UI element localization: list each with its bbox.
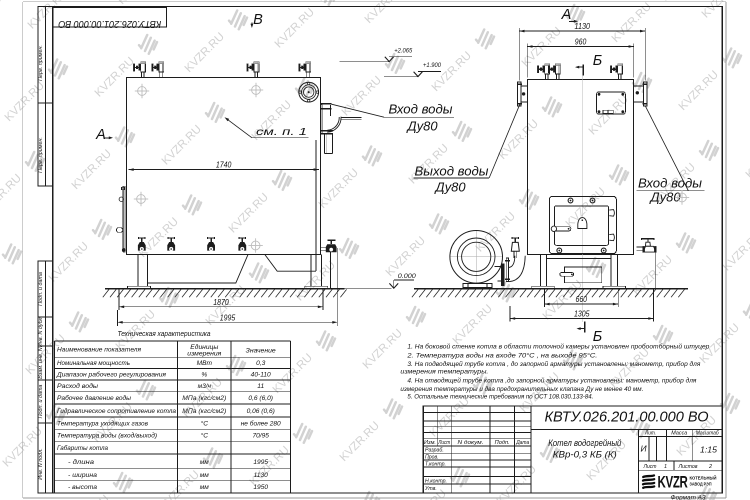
svg-text:0,06 (0,6): 0,06 (0,6) [247,408,275,415]
svg-text:N докум.: N докум. [458,440,484,446]
svg-text:0,6 (6,0): 0,6 (6,0) [248,395,273,402]
svg-text:0,3: 0,3 [256,360,265,367]
svg-text:КВТУ.026.201.00.000 ВО: КВТУ.026.201.00.000 ВО [545,409,709,426]
svg-text:1995: 1995 [253,459,268,466]
svg-text:70/95: 70/95 [252,433,269,440]
svg-text:Пров.: Пров. [425,454,439,460]
svg-text:измерения температуры и два пр: измерения температуры и два предохраните… [400,385,643,393]
svg-text:2: 2 [708,464,712,470]
svg-text:В: В [253,12,263,28]
svg-text:Разраб.: Разраб. [425,448,444,454]
svg-text:1740: 1740 [216,161,232,170]
svg-text:А: А [561,7,572,23]
svg-text:°С: °С [201,432,209,440]
svg-text:Рабочее давление воды: Рабочее давление воды [57,394,131,402]
svg-text:Масштаб: Масштаб [696,431,720,437]
svg-text:1950: 1950 [253,484,268,491]
svg-text:Гидравлическое сопротивление к: Гидравлическое сопротивление котла [57,407,176,415]
svg-text:МВт: МВт [197,360,213,367]
svg-text:см. п. 1: см. п. 1 [256,126,307,138]
svg-text:1. На боковой стенке котла в: 1. На боковой стенке котла в области топ… [407,342,709,350]
svg-text:мм: мм [200,472,210,479]
svg-text:%: % [201,372,207,379]
svg-text:Инв. N дубл.: Инв. N дубл. [38,316,44,347]
svg-text:1995: 1995 [220,313,236,322]
svg-text:Ду80: Ду80 [406,119,439,134]
svg-text:И: И [641,444,648,454]
svg-text:0.000: 0.000 [398,273,416,280]
svg-text:Подп. и дата: Подп. и дата [38,272,44,306]
svg-text:960: 960 [575,38,587,47]
svg-text:МПа (кгс/см2): МПа (кгс/см2) [182,408,226,415]
svg-text:Номинальная мощность: Номинальная мощность [57,360,130,367]
svg-text:Дата: Дата [515,440,529,446]
svg-text:Формат А3: Формат А3 [671,494,706,500]
svg-text:- высота: - высота [68,484,97,491]
svg-text:Вход воды: Вход воды [389,102,453,117]
svg-text:Лит.: Лит. [644,431,656,437]
svg-text:Лист: Лист [643,464,657,470]
svg-text:1130: 1130 [575,22,591,31]
svg-text:+2.065: +2.065 [394,47,412,54]
svg-text:3. На подводящей трубе котла: 3. На подводящей трубе котла , до запорн… [407,360,700,368]
svg-text:1305: 1305 [574,310,590,319]
svg-text:Подп. и дата: Подп. и дата [38,385,44,419]
svg-text:Диапазон рабочего регулировани: Диапазон рабочего регулирования [56,371,166,379]
svg-text:измерения температуры.: измерения температуры. [400,369,488,376]
svg-text:ЗАВОД РЭП: ЗАВОД РЭП [690,482,712,488]
svg-text:МПа (кгс/см2): МПа (кгс/см2) [182,395,226,402]
svg-text:1:15: 1:15 [700,445,717,455]
svg-text:мм: мм [200,484,210,491]
svg-text:Лист: Лист [437,440,451,446]
svg-text:1870: 1870 [213,298,229,307]
svg-text:4. На отводящей трубе котла ,: 4. На отводящей трубе котла ,до запорной… [407,377,696,385]
svg-text:Котел водогрейный: Котел водогрейный [548,438,621,448]
svg-text:Температура воды (вход/выход): Температура воды (вход/выход) [57,432,157,440]
svg-text:Вход воды: Вход воды [638,176,702,191]
svg-text:КВТУ.026.201.00.000 ВО: КВТУ.026.201.00.000 ВО [58,18,161,29]
svg-text:Перв. примен.: Перв. примен. [38,45,44,81]
svg-text:Изм.: Изм. [424,440,436,446]
svg-text:Подп.: Подп. [495,440,510,446]
svg-text:Утв.: Утв. [425,486,437,492]
svg-text:измерения: измерения [187,351,221,358]
svg-text:2. Температура воды на входе: 2. Температура воды на входе 70°С , на в… [406,352,597,360]
svg-text:Перв. примен.: Перв. примен. [38,137,44,173]
svg-text:Ду80: Ду80 [649,190,682,205]
svg-text:Инв. N подл.: Инв. N подл. [38,448,44,480]
svg-text:- ширина: - ширина [68,472,97,479]
svg-text:Б: Б [593,53,602,69]
svg-text:11: 11 [257,383,264,390]
svg-text:мм: мм [200,459,210,466]
svg-text:м3/ч: м3/ч [198,383,212,390]
svg-text:Листов: Листов [678,464,698,470]
svg-text:+1.900: +1.900 [423,62,441,69]
svg-text:Масса: Масса [671,431,687,437]
svg-text:Н.контр.: Н.контр. [425,479,447,485]
svg-text:А: А [95,127,106,143]
svg-text:Температура уходящих газов: Температура уходящих газов [57,419,149,427]
svg-text:не более 280: не более 280 [241,419,281,427]
svg-text:40-110: 40-110 [251,372,271,379]
svg-text:Т.контр.: Т.контр. [425,461,446,467]
svg-text:Расход воды: Расход воды [57,382,98,390]
svg-text:Наименование показателя: Наименование показателя [57,347,141,354]
svg-text:- длина: - длина [68,458,94,466]
svg-text:°С: °С [201,419,209,427]
svg-text:Выход воды: Выход воды [415,164,489,179]
svg-text:КВр-0,3 КБ (К): КВр-0,3 КБ (К) [553,450,617,460]
svg-text:660: 660 [576,295,588,304]
svg-text:Ду80: Ду80 [434,180,467,195]
svg-text:KVZR: KVZR [658,473,688,491]
svg-text:Техническая характеристика: Техническая характеристика [118,329,211,338]
svg-text:5. Остальные технические треб: 5. Остальные технические требования по О… [407,392,593,400]
svg-text:1130: 1130 [254,472,269,479]
svg-text:Единицы: Единицы [190,343,218,351]
svg-text:Габариты котла: Габариты котла [57,444,108,452]
svg-text:Взам. инв. N: Взам. инв. N [38,347,44,379]
svg-text:Значение: Значение [246,348,276,355]
svg-text:1: 1 [664,464,667,470]
